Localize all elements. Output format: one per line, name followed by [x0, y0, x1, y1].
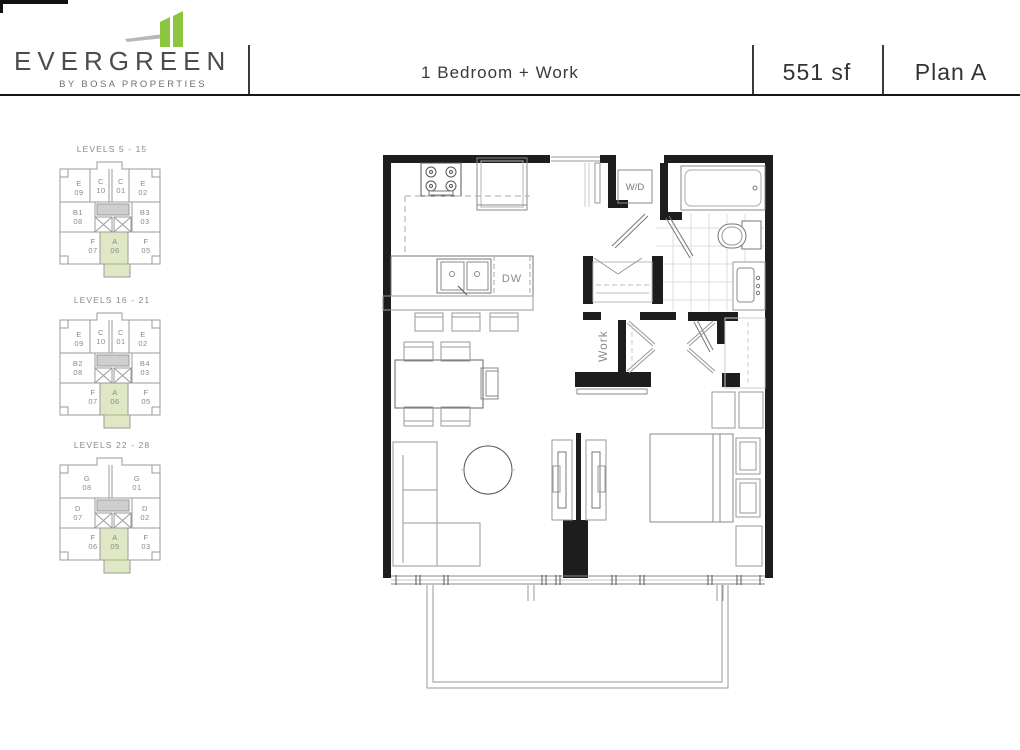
unit-label: D07: [73, 504, 82, 522]
bed: [650, 434, 733, 522]
bathtub: [681, 166, 765, 210]
kitchen: [383, 158, 533, 331]
unit-label: E09: [74, 330, 83, 348]
unit-label: F07: [88, 388, 97, 406]
page-corner-mark: [0, 0, 3, 13]
keyplan-levels-16-21: LEVELS 16 - 21 E09 C10 C01 E02 B208: [57, 295, 167, 431]
unit-label: F05: [141, 237, 150, 255]
entry-closet: [593, 258, 652, 302]
keyplan-title: LEVELS 16 - 21: [57, 295, 167, 305]
unit-label: C01: [116, 328, 125, 346]
unit-label: E02: [138, 330, 147, 348]
dining-table: [395, 360, 483, 408]
unit-label-highlighted: A06: [110, 388, 119, 406]
unit-label-highlighted: A06: [110, 237, 119, 255]
dining: [395, 342, 498, 426]
unit-label: B208: [73, 359, 83, 377]
unit-label: C10: [96, 328, 105, 346]
dishwasher-label: DW: [502, 273, 522, 285]
window-wall: [391, 575, 765, 601]
walls: [383, 155, 773, 578]
unit-label: F07: [88, 237, 97, 255]
page-corner-mark: [0, 0, 68, 4]
unit-label: F03: [141, 533, 150, 551]
unit-label: B403: [140, 359, 150, 377]
keyplan-levels-22-28: LEVELS 22 - 28 G08 G01 D07 D02 F06 A05 F…: [57, 440, 167, 576]
unit-label: E02: [138, 179, 147, 197]
washer-dryer-label: W/D: [626, 182, 645, 193]
unit-label: G08: [82, 474, 91, 492]
unit-label: C01: [116, 177, 125, 195]
bedroom: [650, 434, 762, 566]
brand-tagline: BY BOSA PROPERTIES: [14, 79, 207, 90]
bathroom: [612, 166, 765, 352]
sofa: [393, 442, 437, 566]
work-label: Work: [596, 330, 610, 362]
unit-label: E09: [74, 179, 83, 197]
header-rule: [0, 94, 1020, 96]
keyplan-levels-5-15: LEVELS 5 - 15 E09 C10 C01 E02 B108 B: [57, 144, 167, 280]
plan-type-title: 1 Bedroom + Work: [248, 63, 752, 83]
work-desk: [577, 389, 647, 394]
unit-label: B303: [140, 208, 150, 226]
unit-label: B108: [73, 208, 83, 226]
keyplan-title: LEVELS 22 - 28: [57, 440, 167, 450]
fridge: [477, 158, 527, 210]
keyplan-title: LEVELS 5 - 15: [57, 144, 167, 154]
floorplan-drawing: DW W/D: [375, 148, 780, 698]
dresser: [736, 526, 762, 566]
logo-buildings-icon: [122, 8, 192, 50]
plan-area: 551 sf: [752, 59, 882, 86]
unit-label: F05: [141, 388, 150, 406]
unit-label: D02: [140, 504, 149, 522]
unit-label-highlighted: A05: [110, 533, 119, 551]
entry-door: [551, 157, 600, 207]
unit-label: G01: [132, 474, 141, 492]
balcony: [427, 585, 728, 688]
plan-name: Plan A: [882, 59, 1020, 86]
unit-label: C10: [96, 177, 105, 195]
brand-name: EVERGREEN: [14, 46, 244, 77]
coffee-table: [464, 446, 512, 494]
unit-label: F06: [88, 533, 97, 551]
